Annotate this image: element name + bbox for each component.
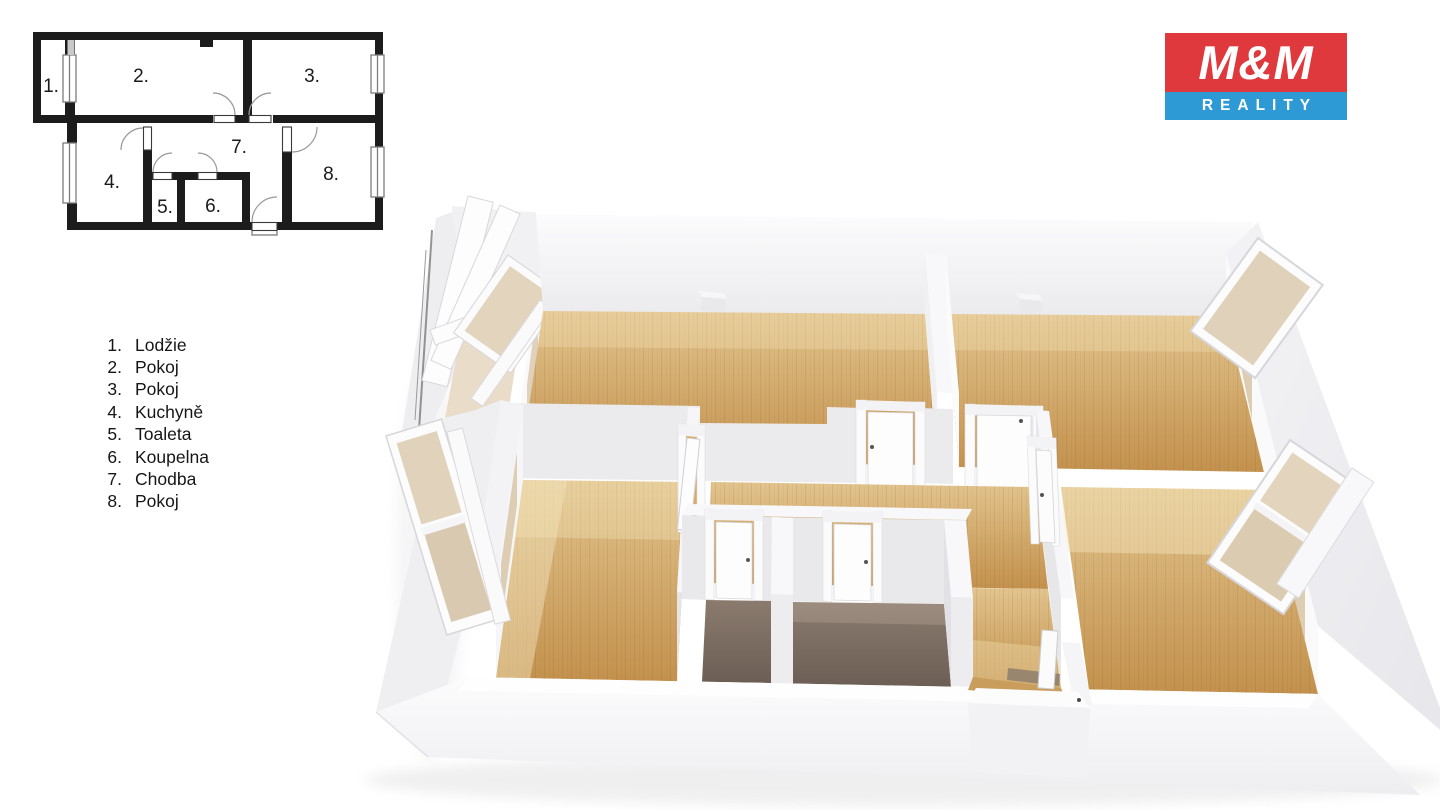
porch-front [968,703,1090,778]
door-handle [746,558,750,562]
kitchen-floor [496,480,688,682]
door-frame-bathroom [823,511,882,603]
back-wall [536,213,1252,318]
door-panel [977,415,1031,490]
entrance-handle [1077,698,1081,702]
door-handle [864,560,868,564]
door-handle [870,445,874,449]
door-panel [868,412,913,487]
door-handle [1040,493,1044,497]
toilet-floor [702,600,772,683]
entrance-door-panel [1038,630,1058,689]
bathroom-floor [793,602,951,687]
wall-toilet-bathroom [771,517,793,684]
door-frame-toilet [705,509,763,601]
floor-plan-3d [0,0,1440,810]
real-estate-floorplan-image: 1. 2. 3. 4. 5. 6. 7. 8. 1.Lodžie 2.Pokoj… [0,0,1440,810]
door-handle [1019,419,1023,423]
